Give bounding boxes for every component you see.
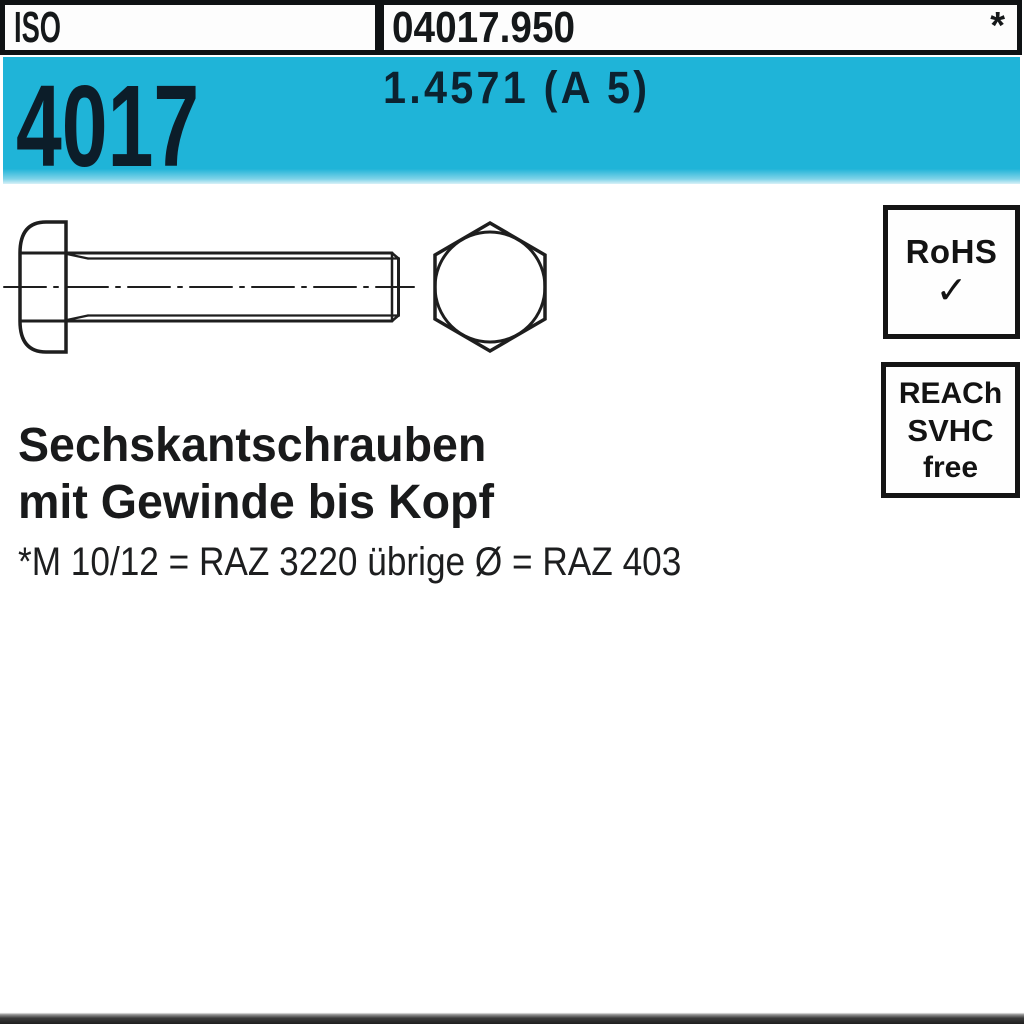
- footnote-marker: *: [990, 11, 1005, 41]
- rohs-label: RoHS: [906, 234, 998, 270]
- bolt-side-view: [4, 222, 414, 352]
- standard-number: 4017: [16, 68, 199, 184]
- thread-runout-top: [67, 254, 88, 259]
- header-cell-standard: ISO: [0, 0, 380, 55]
- standard-banner: 4017 1.4571 (A 5): [3, 57, 1020, 184]
- checkmark-icon: ✓: [936, 270, 968, 310]
- rohs-badge: RoHS ✓: [883, 205, 1020, 339]
- page-bottom-edge: [0, 1011, 1024, 1024]
- standard-org-label: ISO: [14, 6, 61, 49]
- reach-line-2: SVHC: [907, 412, 993, 449]
- reach-line-1: REACh: [899, 375, 1002, 412]
- thread-runout-bottom: [67, 316, 88, 321]
- header-cell-article: 04017.950 *: [379, 0, 1022, 55]
- article-number: 04017.950: [392, 6, 575, 49]
- title-line-1: Sechskantschrauben: [18, 417, 494, 474]
- product-footnote: *M 10/12 = RAZ 3220 übrige Ø = RAZ 403: [18, 541, 681, 583]
- reach-badge: REACh SVHC free: [881, 362, 1020, 498]
- head-chamfer-circle: [435, 232, 545, 342]
- material-grade: 1.4571 (A 5): [383, 65, 650, 110]
- technical-drawing: [0, 195, 560, 380]
- title-line-2: mit Gewinde bis Kopf: [18, 474, 494, 531]
- hexagon-outline: [435, 223, 545, 351]
- reach-line-3: free: [923, 449, 978, 486]
- product-title: Sechskantschrauben mit Gewinde bis Kopf: [18, 417, 509, 531]
- bolt-end-view: [435, 223, 545, 351]
- header-row: ISO 04017.950 *: [0, 0, 1022, 55]
- catalog-product-image: ISO 04017.950 * 4017 1.4571 (A 5): [0, 0, 1024, 1024]
